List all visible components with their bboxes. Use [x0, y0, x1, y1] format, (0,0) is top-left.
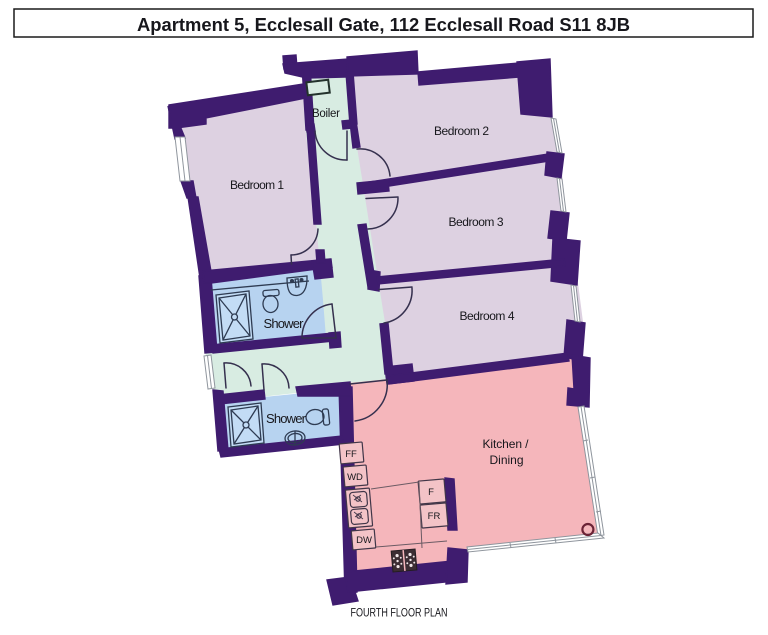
svg-text:Boiler: Boiler [312, 108, 340, 120]
svg-text:Dining: Dining [490, 453, 524, 467]
svg-text:Shower: Shower [266, 411, 307, 426]
svg-text:WD: WD [347, 472, 363, 483]
svg-text:Shower: Shower [264, 316, 305, 331]
svg-text:Bedroom 4: Bedroom 4 [460, 309, 515, 323]
svg-text:FR: FR [428, 511, 441, 522]
svg-text:Kitchen /: Kitchen / [483, 437, 530, 451]
svg-text:Bedroom 2: Bedroom 2 [434, 124, 489, 138]
svg-text:DW: DW [356, 535, 372, 546]
svg-text:FF: FF [345, 449, 357, 460]
svg-text:Bedroom 1: Bedroom 1 [230, 178, 284, 192]
svg-text:Bedroom 3: Bedroom 3 [449, 215, 504, 229]
svg-text:Apartment 5, Ecclesall Gate, 1: Apartment 5, Ecclesall Gate, 112 Ecclesa… [137, 14, 630, 35]
svg-text:F: F [428, 487, 434, 498]
svg-text:FOURTH FLOOR PLAN: FOURTH FLOOR PLAN [351, 606, 448, 620]
